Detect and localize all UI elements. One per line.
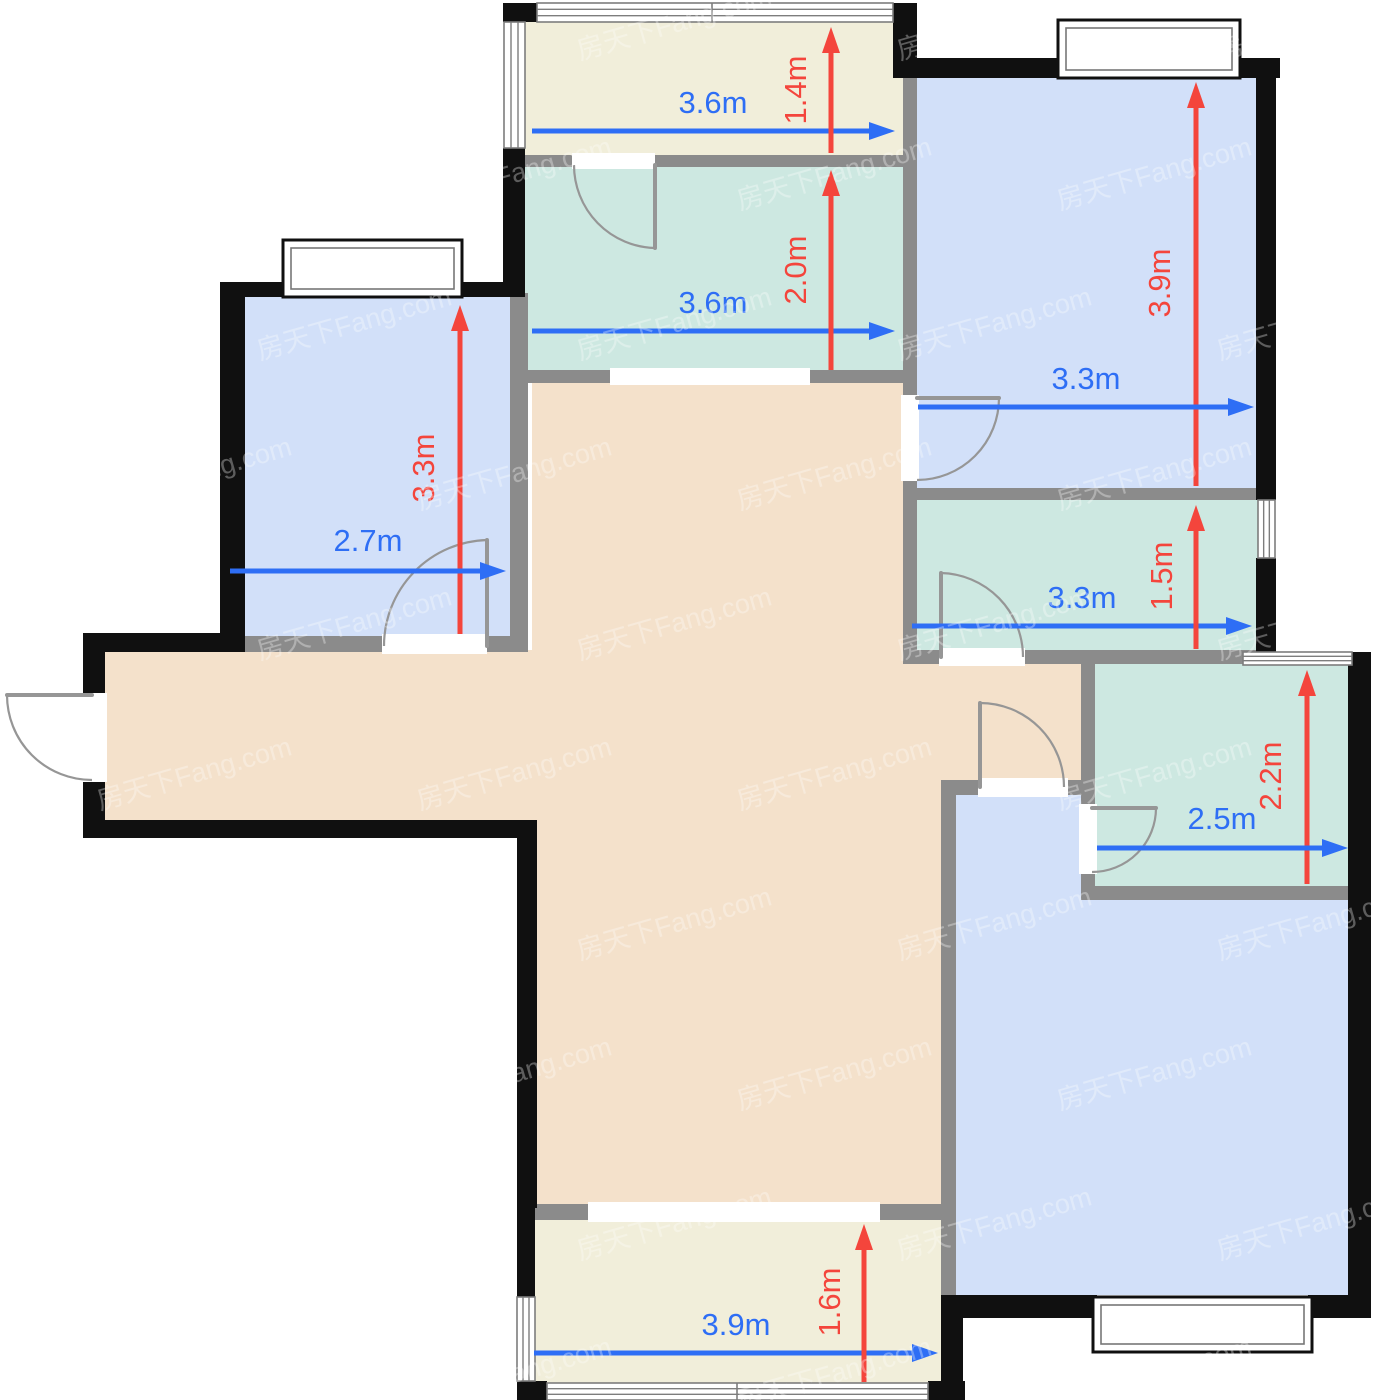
dimension-label: 1.4m <box>778 56 813 125</box>
dimension-label: 2.7m <box>334 523 403 558</box>
dimension-label: 1.6m <box>812 1268 847 1337</box>
dimension-label: 3.6m <box>679 85 748 120</box>
dimension-label: 2.5m <box>1188 801 1257 836</box>
exterior-wall <box>1308 1295 1352 1318</box>
exterior-wall <box>503 3 538 22</box>
window <box>1258 500 1275 558</box>
exterior-wall <box>941 1295 1097 1318</box>
exterior-wall <box>517 1206 535 1299</box>
floor-plan-canvas: 3.6m1.4m3.6m2.0m3.9m3.3m3.3m2.7m3.3m1.5m… <box>0 0 1373 1400</box>
dimension-label: 2.0m <box>778 236 813 305</box>
dimension-label: 3.9m <box>702 1307 771 1342</box>
wall-opening <box>83 693 107 782</box>
dimension-label: 2.2m <box>1253 742 1288 811</box>
window <box>504 22 525 148</box>
wall-opening <box>382 634 487 654</box>
exterior-wall <box>83 820 535 838</box>
dimension-label: 3.9m <box>1142 249 1177 318</box>
wall-opening <box>1079 804 1097 874</box>
floor-plan-svg: 3.6m1.4m3.6m2.0m3.9m3.3m3.3m2.7m3.3m1.5m… <box>0 0 1373 1400</box>
dimension-label: 3.3m <box>1052 361 1121 396</box>
interior-wall <box>1081 886 1352 900</box>
wall-opening <box>610 368 810 385</box>
exterior-wall <box>1256 58 1276 500</box>
exterior-wall <box>517 820 537 1208</box>
room-bedroom-top-right <box>917 78 1258 488</box>
exterior-wall <box>462 282 520 297</box>
exterior-wall <box>83 633 245 652</box>
dimension-label: 1.5m <box>1144 542 1179 611</box>
